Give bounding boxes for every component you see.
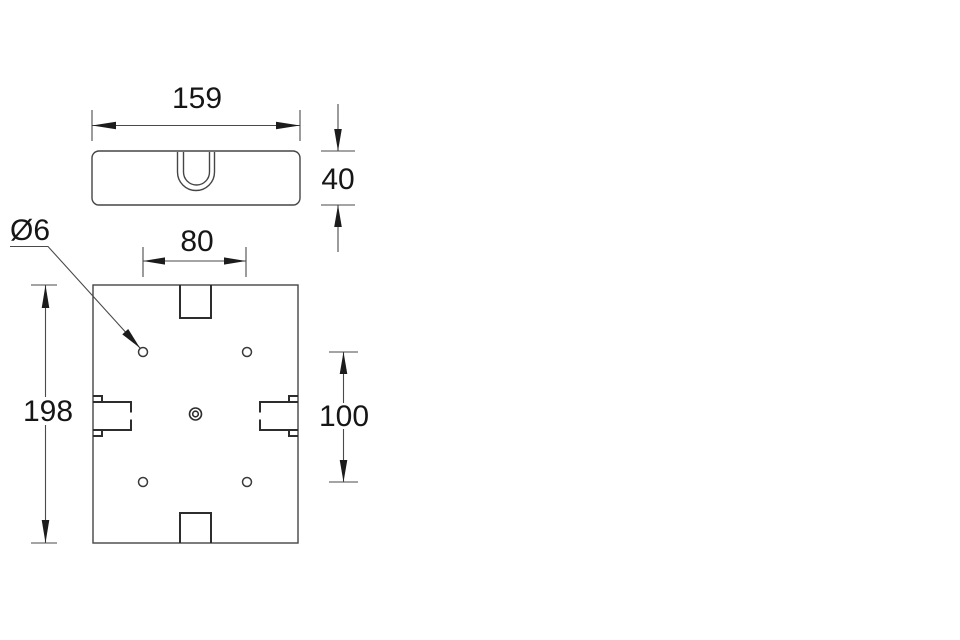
dim-hole-span-x-arrow-right [224, 257, 246, 264]
left-clip-body [93, 402, 131, 430]
technical-drawing-canvas: 159 40 80 198 [0, 0, 960, 640]
dim-front-height-arrow-top [334, 129, 342, 151]
dim-hole-span-x-arrow-left [143, 257, 165, 264]
drawing-page: 159 40 80 198 [0, 0, 960, 640]
mounting-hole-top-left [139, 348, 148, 357]
dim-hole-span-y-arrow-bottom [340, 460, 348, 482]
hole-diameter-leader-line [10, 247, 140, 349]
top-notch [180, 285, 211, 318]
right-clip [260, 396, 298, 436]
dim-front-width: 159 [92, 82, 300, 141]
dim-hole-span-x: 80 [143, 225, 246, 277]
dim-plan-height: 198 [23, 285, 73, 543]
dim-hole-span-x-label: 80 [180, 225, 213, 258]
dim-plan-height-arrow-bottom [42, 520, 50, 543]
bottom-notch [180, 513, 211, 543]
dim-front-height: 40 [321, 104, 355, 252]
mounting-hole-top-right [243, 348, 252, 357]
dim-plan-height-label: 198 [23, 395, 73, 428]
front-view [92, 151, 300, 205]
dim-hole-span-y: 100 [319, 352, 369, 482]
left-clip [93, 396, 131, 436]
dim-front-width-arrow-right [276, 122, 300, 129]
dim-front-height-arrow-bottom [334, 205, 342, 227]
handle-recess-inner [184, 152, 210, 185]
front-outline [92, 151, 300, 205]
right-clip-body [260, 402, 298, 430]
callout-hole-diameter: Ø6 [10, 214, 140, 348]
dim-front-height-label: 40 [321, 163, 354, 196]
dim-hole-span-y-label: 100 [319, 400, 369, 433]
center-pivot-outer [190, 408, 202, 420]
mounting-hole-bottom-right [243, 478, 252, 487]
dim-hole-span-y-arrow-top [340, 352, 348, 374]
dim-plan-height-arrow-top [42, 285, 50, 308]
plan-view [93, 285, 298, 543]
plan-outline [93, 285, 298, 543]
hole-diameter-label: Ø6 [10, 214, 50, 247]
dim-front-width-label: 159 [172, 82, 222, 115]
mounting-hole-bottom-left [139, 478, 148, 487]
center-pivot-inner [193, 411, 199, 417]
dim-front-width-arrow-left [92, 122, 116, 129]
